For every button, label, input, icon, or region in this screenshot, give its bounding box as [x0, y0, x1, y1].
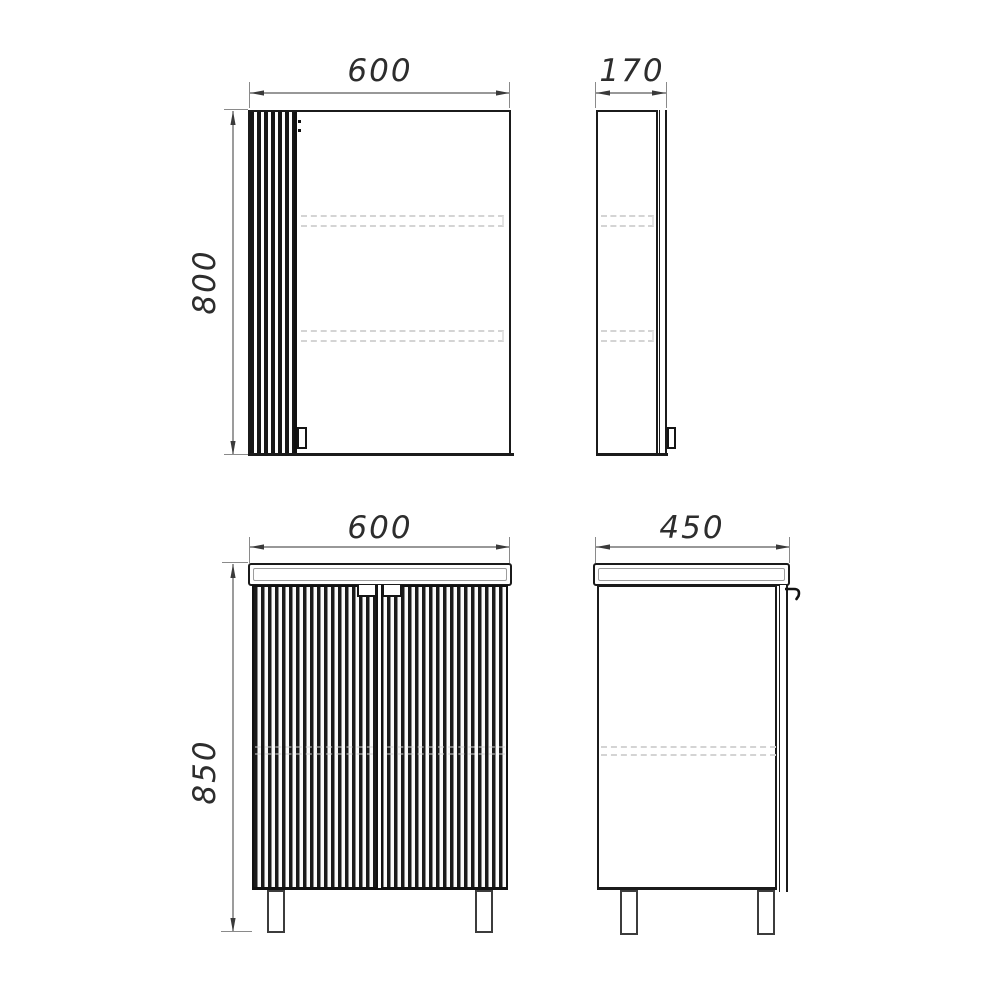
dim-label-mirror-side-depth: 170: [572, 53, 692, 89]
extension-line: [224, 109, 248, 110]
extension-line: [666, 82, 667, 108]
hidden-shelf-line: [301, 330, 504, 342]
right-door-handle: [382, 585, 402, 597]
door-gap: [376, 585, 383, 888]
extension-line: [595, 537, 596, 563]
base-cabinet-side-body: [597, 585, 777, 890]
door-strip-side: [779, 585, 788, 892]
extension-line: [222, 562, 248, 563]
hidden-shelf-line: [601, 746, 776, 756]
door-handle-side: [667, 427, 676, 449]
extension-line: [509, 82, 510, 108]
cabinet-leg: [267, 890, 285, 933]
dim-label-mirror-front-width: 600: [320, 53, 440, 89]
dim-line-mirror-side-depth: [595, 86, 667, 100]
door-handle: [297, 427, 307, 449]
left-door-handle: [357, 585, 377, 597]
extension-line: [789, 537, 790, 563]
cabinet-bottom-edge: [248, 453, 514, 456]
extension-line: [595, 82, 596, 108]
cabinet-leg: [620, 890, 638, 935]
hinge-mark: [298, 129, 301, 132]
mirror-cabinet-side-body: [596, 110, 658, 455]
dim-line-mirror-front-height: [226, 110, 240, 456]
fluted-panel: [250, 112, 297, 453]
handle-profile-hook: [785, 586, 805, 606]
technical-drawing-canvas: 600 800 170: [0, 0, 1000, 1000]
extension-line: [509, 537, 510, 563]
countertop: [248, 563, 512, 586]
countertop-side: [593, 563, 790, 586]
mirror-door-strip: [659, 110, 667, 455]
extension-line: [249, 537, 250, 563]
hinge-mark: [298, 120, 301, 123]
extension-line: [249, 82, 250, 108]
extension-line: [221, 931, 252, 932]
countertop-inner-line: [598, 568, 785, 581]
dim-line-base-front-height: [226, 563, 240, 933]
countertop-inner-line: [253, 568, 507, 581]
hidden-shelf-line: [601, 215, 654, 227]
cabinet-leg: [757, 890, 775, 935]
dim-line-mirror-front-width: [249, 86, 511, 100]
dim-line-base-front-width: [249, 540, 511, 554]
cabinet-bottom-edge: [596, 453, 668, 456]
cabinet-leg: [475, 890, 493, 933]
hidden-shelf-line: [301, 215, 504, 227]
extension-line: [224, 454, 248, 455]
hidden-shelf-line: [601, 330, 654, 342]
dim-line-base-side-depth: [595, 540, 791, 554]
